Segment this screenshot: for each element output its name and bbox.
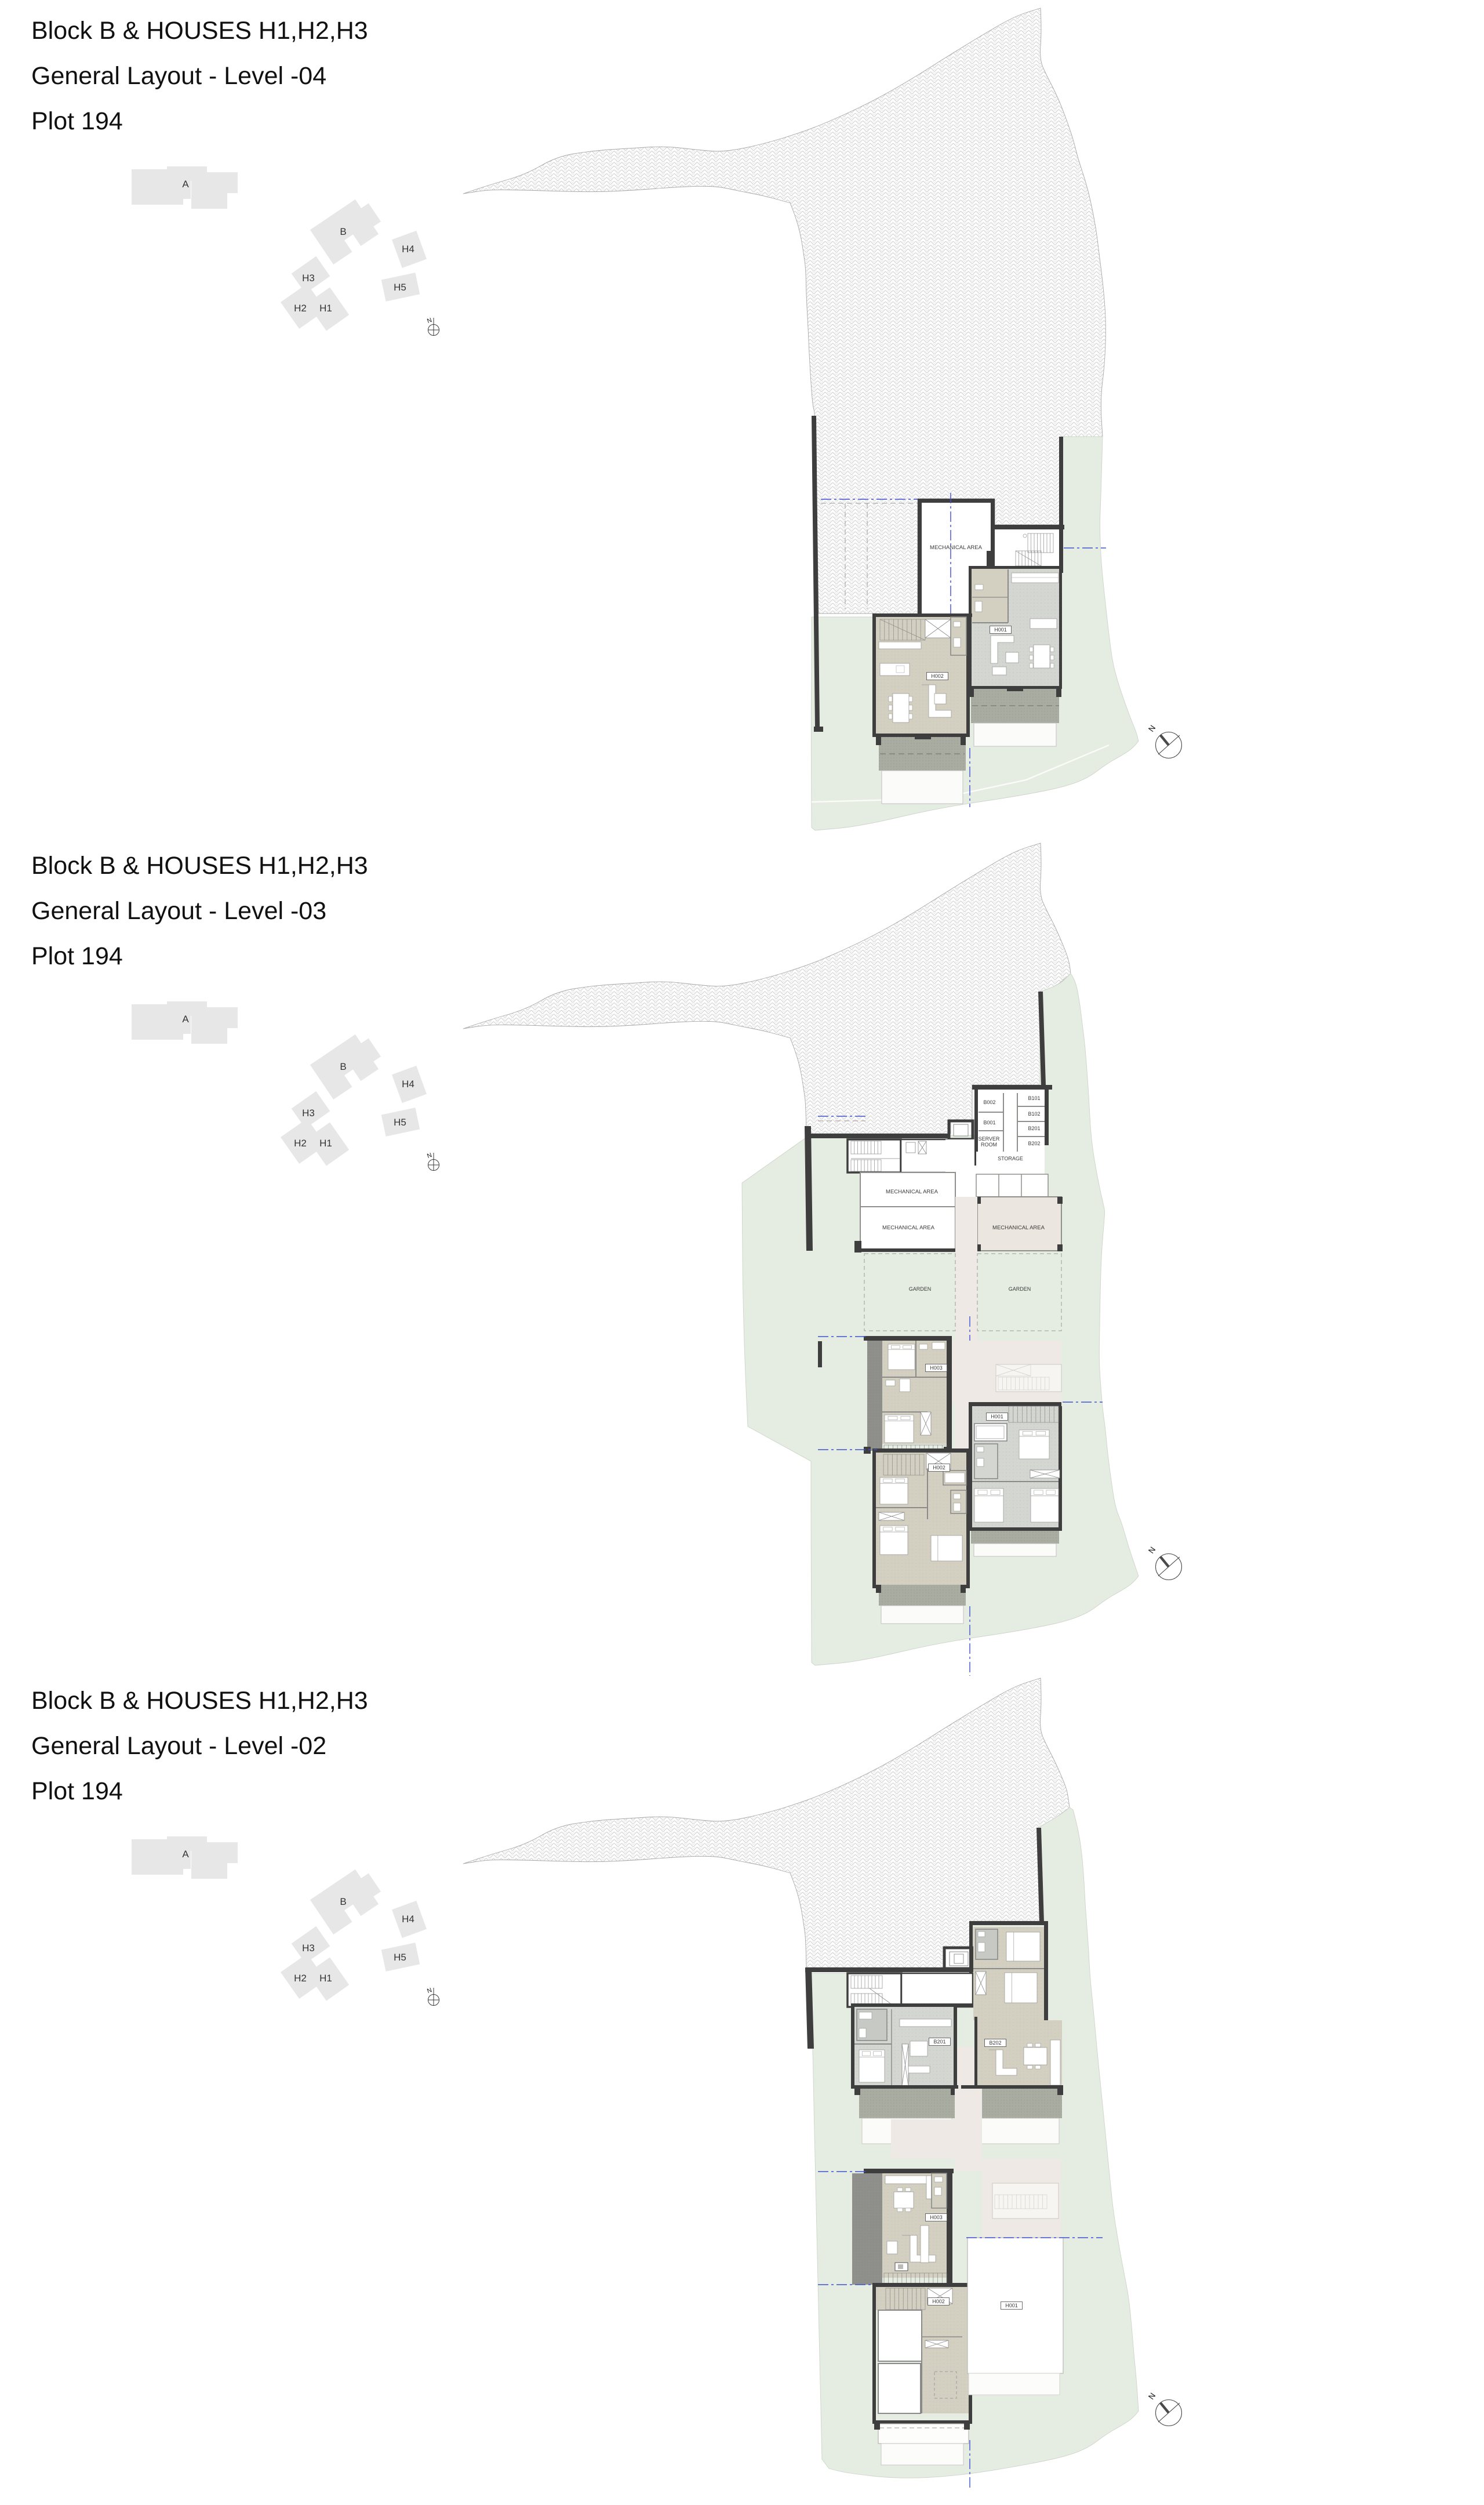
svg-text:GARDEN: GARDEN [1009, 1286, 1031, 1292]
svg-text:H3: H3 [302, 273, 315, 284]
svg-text:A: A [182, 1014, 189, 1025]
svg-text:H5: H5 [394, 1952, 406, 1963]
svg-text:H4: H4 [402, 1079, 414, 1090]
svg-text:H1: H1 [319, 1973, 332, 1984]
svg-text:B201: B201 [933, 2039, 945, 2045]
svg-text:H5: H5 [394, 1117, 406, 1128]
svg-text:A: A [182, 179, 189, 190]
svg-text:Block B & HOUSES H1,H2,H3: Block B & HOUSES H1,H2,H3 [31, 17, 368, 45]
svg-text:H2: H2 [294, 1973, 307, 1984]
svg-text:B102: B102 [1028, 1111, 1040, 1117]
svg-text:B202: B202 [989, 2040, 1001, 2046]
svg-text:H3: H3 [302, 1108, 315, 1119]
svg-text:General Layout - Level -03: General Layout - Level -03 [31, 897, 326, 925]
svg-text:A: A [182, 1849, 189, 1860]
svg-text:MECHANICAL AREA: MECHANICAL AREA [886, 1189, 939, 1195]
svg-text:STORAGE: STORAGE [998, 1156, 1023, 1161]
svg-text:H2: H2 [294, 1138, 307, 1149]
svg-text:General Layout - Level -02: General Layout - Level -02 [31, 1732, 326, 1760]
svg-text:H1: H1 [319, 1138, 332, 1149]
svg-text:Block B & HOUSES H1,H2,H3: Block B & HOUSES H1,H2,H3 [31, 852, 368, 880]
svg-text:MECHANICAL AREA: MECHANICAL AREA [930, 544, 983, 551]
svg-text:Plot 194: Plot 194 [31, 1777, 123, 1805]
svg-text:B002: B002 [983, 1099, 995, 1105]
svg-text:Block B & HOUSES H1,H2,H3: Block B & HOUSES H1,H2,H3 [31, 1687, 368, 1715]
svg-text:General Layout - Level -04: General Layout - Level -04 [31, 62, 326, 90]
svg-text:ROOM: ROOM [981, 1142, 997, 1148]
svg-text:B: B [340, 226, 346, 237]
svg-text:H3: H3 [302, 1943, 315, 1954]
svg-text:Plot 194: Plot 194 [31, 942, 123, 970]
svg-text:H001: H001 [994, 627, 1007, 633]
svg-text:H5: H5 [394, 282, 406, 293]
svg-text:H002: H002 [932, 2299, 945, 2304]
svg-text:B101: B101 [1028, 1095, 1040, 1101]
svg-text:H001: H001 [991, 1414, 1003, 1420]
svg-text:MECHANICAL AREA: MECHANICAL AREA [882, 1225, 935, 1231]
svg-text:MECHANICAL AREA: MECHANICAL AREA [992, 1225, 1045, 1231]
svg-text:SERVER: SERVER [979, 1136, 1000, 1142]
svg-text:GARDEN: GARDEN [909, 1286, 932, 1292]
svg-text:H4: H4 [402, 1914, 414, 1925]
svg-text:Plot 194: Plot 194 [31, 107, 123, 135]
svg-text:H002: H002 [931, 673, 944, 679]
svg-text:H003: H003 [930, 1365, 943, 1371]
svg-text:B202: B202 [1028, 1141, 1040, 1146]
svg-text:H2: H2 [294, 303, 307, 314]
svg-text:H002: H002 [933, 1465, 945, 1471]
svg-text:H4: H4 [402, 244, 414, 255]
svg-text:H003: H003 [930, 2214, 943, 2220]
svg-text:B: B [340, 1061, 346, 1072]
svg-text:B201: B201 [1028, 1126, 1040, 1131]
svg-text:B: B [340, 1896, 346, 1907]
svg-text:B001: B001 [983, 1120, 995, 1126]
svg-text:H001: H001 [1005, 2303, 1018, 2308]
svg-text:H1: H1 [319, 303, 332, 314]
